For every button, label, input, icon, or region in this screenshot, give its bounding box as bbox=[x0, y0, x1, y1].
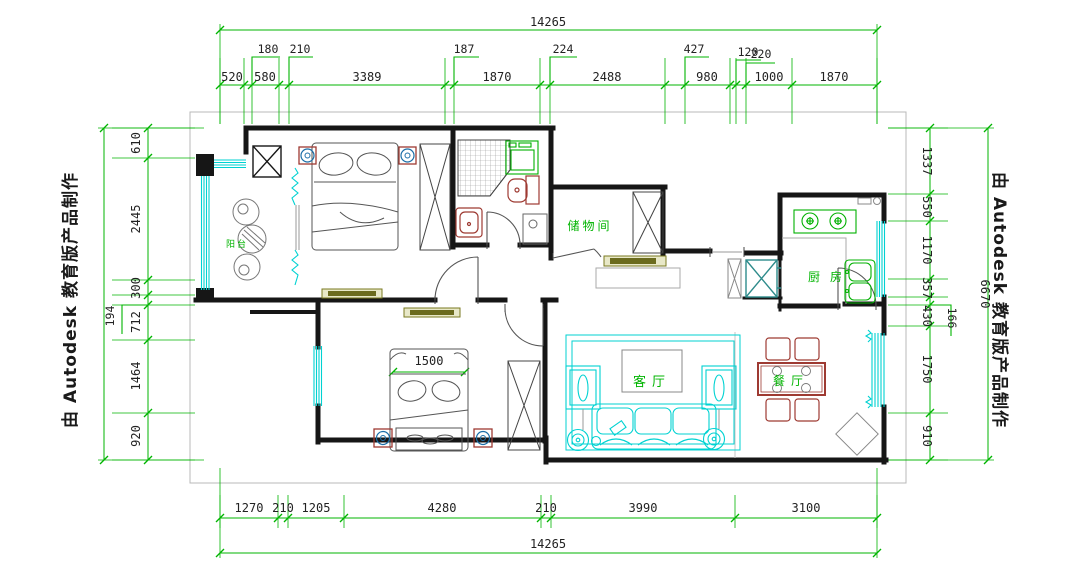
wall-piers bbox=[196, 154, 214, 301]
walls bbox=[196, 128, 886, 462]
dim: 920 bbox=[129, 425, 143, 447]
storage-room: 储物间 bbox=[567, 192, 680, 288]
bathroom-cabinet bbox=[523, 214, 547, 244]
balcony-label: 阳台 bbox=[226, 238, 248, 250]
master-bedroom bbox=[299, 143, 450, 298]
dim: 180 bbox=[258, 42, 279, 56]
tv-cabinet2 bbox=[404, 308, 460, 317]
dim: 220 bbox=[751, 47, 772, 61]
dim: 1870 bbox=[820, 70, 849, 84]
dim: 194 bbox=[103, 306, 117, 327]
dim: 357 bbox=[920, 277, 934, 299]
dim: 1000 bbox=[755, 70, 784, 84]
kitchen-label: 厨房 bbox=[808, 269, 852, 284]
shower-area bbox=[458, 140, 510, 196]
toilet bbox=[508, 176, 539, 204]
dim: 1464 bbox=[129, 362, 143, 391]
master-bed bbox=[312, 143, 398, 250]
dim: 1750 bbox=[920, 355, 934, 384]
storage-wardrobe bbox=[633, 192, 663, 253]
dim: 427 bbox=[684, 42, 705, 56]
dim: 2488 bbox=[593, 70, 622, 84]
dim: 1205 bbox=[302, 501, 331, 515]
speaker-tower-left bbox=[566, 366, 600, 409]
dim: 430 bbox=[920, 305, 934, 327]
wardrobe2 bbox=[508, 361, 540, 450]
stove bbox=[794, 210, 856, 233]
dim: 4280 bbox=[428, 501, 457, 515]
dim-bottom-overall: 14265 bbox=[530, 537, 566, 551]
bathroom-sink bbox=[456, 208, 482, 237]
dim-top-overall: 14265 bbox=[530, 15, 566, 29]
dim: 3100 bbox=[792, 501, 821, 515]
floorplan-canvas: 阳台 bbox=[0, 0, 1074, 576]
duct-shaft bbox=[728, 259, 741, 298]
dim: 1870 bbox=[483, 70, 512, 84]
bathroom bbox=[456, 140, 547, 244]
fridge bbox=[746, 260, 781, 297]
cad-floorplan-screenshot: 阳台 bbox=[0, 0, 1074, 576]
kitchen-small-items bbox=[858, 198, 881, 205]
dim: 550 bbox=[920, 196, 934, 218]
balcony: 阳台 bbox=[226, 199, 266, 280]
dim: 300 bbox=[129, 277, 143, 299]
bed-width-dim: 1500 bbox=[415, 354, 444, 368]
floor-speaker-right bbox=[704, 429, 725, 450]
kitchen: 厨房 bbox=[782, 198, 881, 305]
speaker-stands bbox=[583, 409, 719, 430]
autodesk-watermark-left: 由 Autodesk 教育版产品制作 bbox=[60, 172, 81, 428]
ceiling-speaker-icon bbox=[399, 147, 416, 164]
dim: 610 bbox=[129, 132, 143, 154]
dim: 580 bbox=[254, 70, 276, 84]
dim: 3389 bbox=[353, 70, 382, 84]
master-tv-cabinet bbox=[322, 289, 382, 298]
washing-machine bbox=[506, 141, 538, 174]
autodesk-watermark-right: 由 Autodesk 教育版产品制作 bbox=[989, 172, 1010, 428]
living-room: 客厅 bbox=[566, 335, 740, 451]
floor-speaker-left bbox=[568, 430, 589, 451]
entry-core bbox=[728, 259, 781, 298]
living-label: 客厅 bbox=[633, 374, 671, 390]
dim: 1170 bbox=[920, 236, 934, 265]
dim: 3990 bbox=[629, 501, 658, 515]
dining-label: 餐厅 bbox=[773, 373, 809, 388]
dining-room: 餐厅 bbox=[758, 338, 878, 455]
storage-label: 储物间 bbox=[567, 218, 612, 233]
sofa bbox=[592, 404, 717, 449]
dim: 2445 bbox=[129, 205, 143, 234]
dim: 210 bbox=[272, 501, 294, 515]
dim: 712 bbox=[129, 311, 143, 333]
dim: 210 bbox=[290, 42, 311, 56]
second-bedroom: 1500 bbox=[374, 308, 540, 451]
dim: 980 bbox=[696, 70, 718, 84]
dim: 1270 bbox=[235, 501, 264, 515]
master-wardrobe bbox=[420, 144, 450, 250]
dim: 1337 bbox=[920, 147, 934, 176]
dim: 910 bbox=[920, 425, 934, 447]
dimension-lines bbox=[98, 24, 994, 558]
plant-diamond bbox=[836, 413, 878, 455]
dim: 224 bbox=[553, 42, 574, 56]
dim: 187 bbox=[454, 42, 475, 56]
dim: 520 bbox=[221, 70, 243, 84]
dim: 166 bbox=[945, 308, 959, 329]
ceiling-speaker-icon bbox=[299, 147, 316, 164]
column-box bbox=[253, 146, 281, 177]
dim: 210 bbox=[535, 501, 557, 515]
balcony-slider bbox=[296, 205, 299, 250]
hall-tv-cabinet bbox=[596, 256, 680, 288]
speaker-tower-right bbox=[702, 366, 736, 409]
